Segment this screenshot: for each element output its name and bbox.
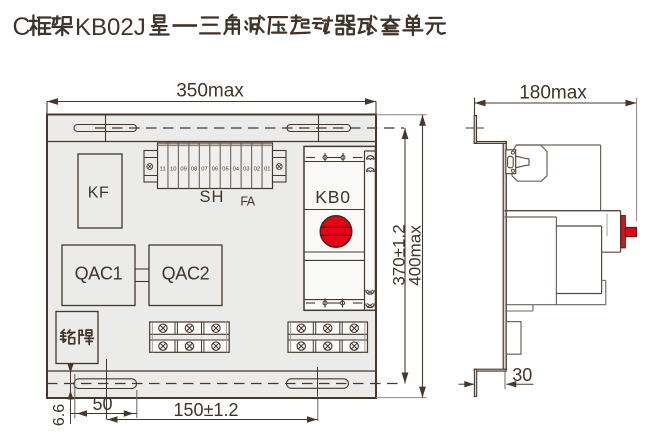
svg-text:06: 06 [212,166,218,172]
svg-text:KF: KF [88,185,109,202]
svg-text:KB0: KB0 [315,187,350,207]
svg-text:400max: 400max [406,225,425,286]
svg-text:50: 50 [92,394,112,414]
svg-text:C: C [13,13,31,41]
svg-text:30: 30 [512,365,532,385]
svg-text:350max: 350max [176,81,244,102]
svg-text:6.6: 6.6 [51,404,68,426]
svg-text:09: 09 [180,166,186,172]
svg-text:QAC2: QAC2 [162,264,210,284]
svg-text:04: 04 [233,166,240,172]
svg-text:QAC1: QAC1 [75,264,123,284]
svg-text:02: 02 [254,166,260,172]
svg-text:03: 03 [243,166,249,172]
svg-text:08: 08 [191,166,197,172]
svg-text:01: 01 [264,166,270,172]
svg-text:KB02J: KB02J [75,14,146,41]
svg-text:05: 05 [222,166,228,172]
svg-text:SH: SH [200,188,225,206]
svg-text:150±1.2: 150±1.2 [174,400,239,420]
svg-text:07: 07 [201,166,207,172]
svg-text:10: 10 [170,166,176,172]
svg-text:180max: 180max [519,83,587,104]
svg-text:11: 11 [160,166,166,172]
svg-text:FA: FA [240,195,255,209]
